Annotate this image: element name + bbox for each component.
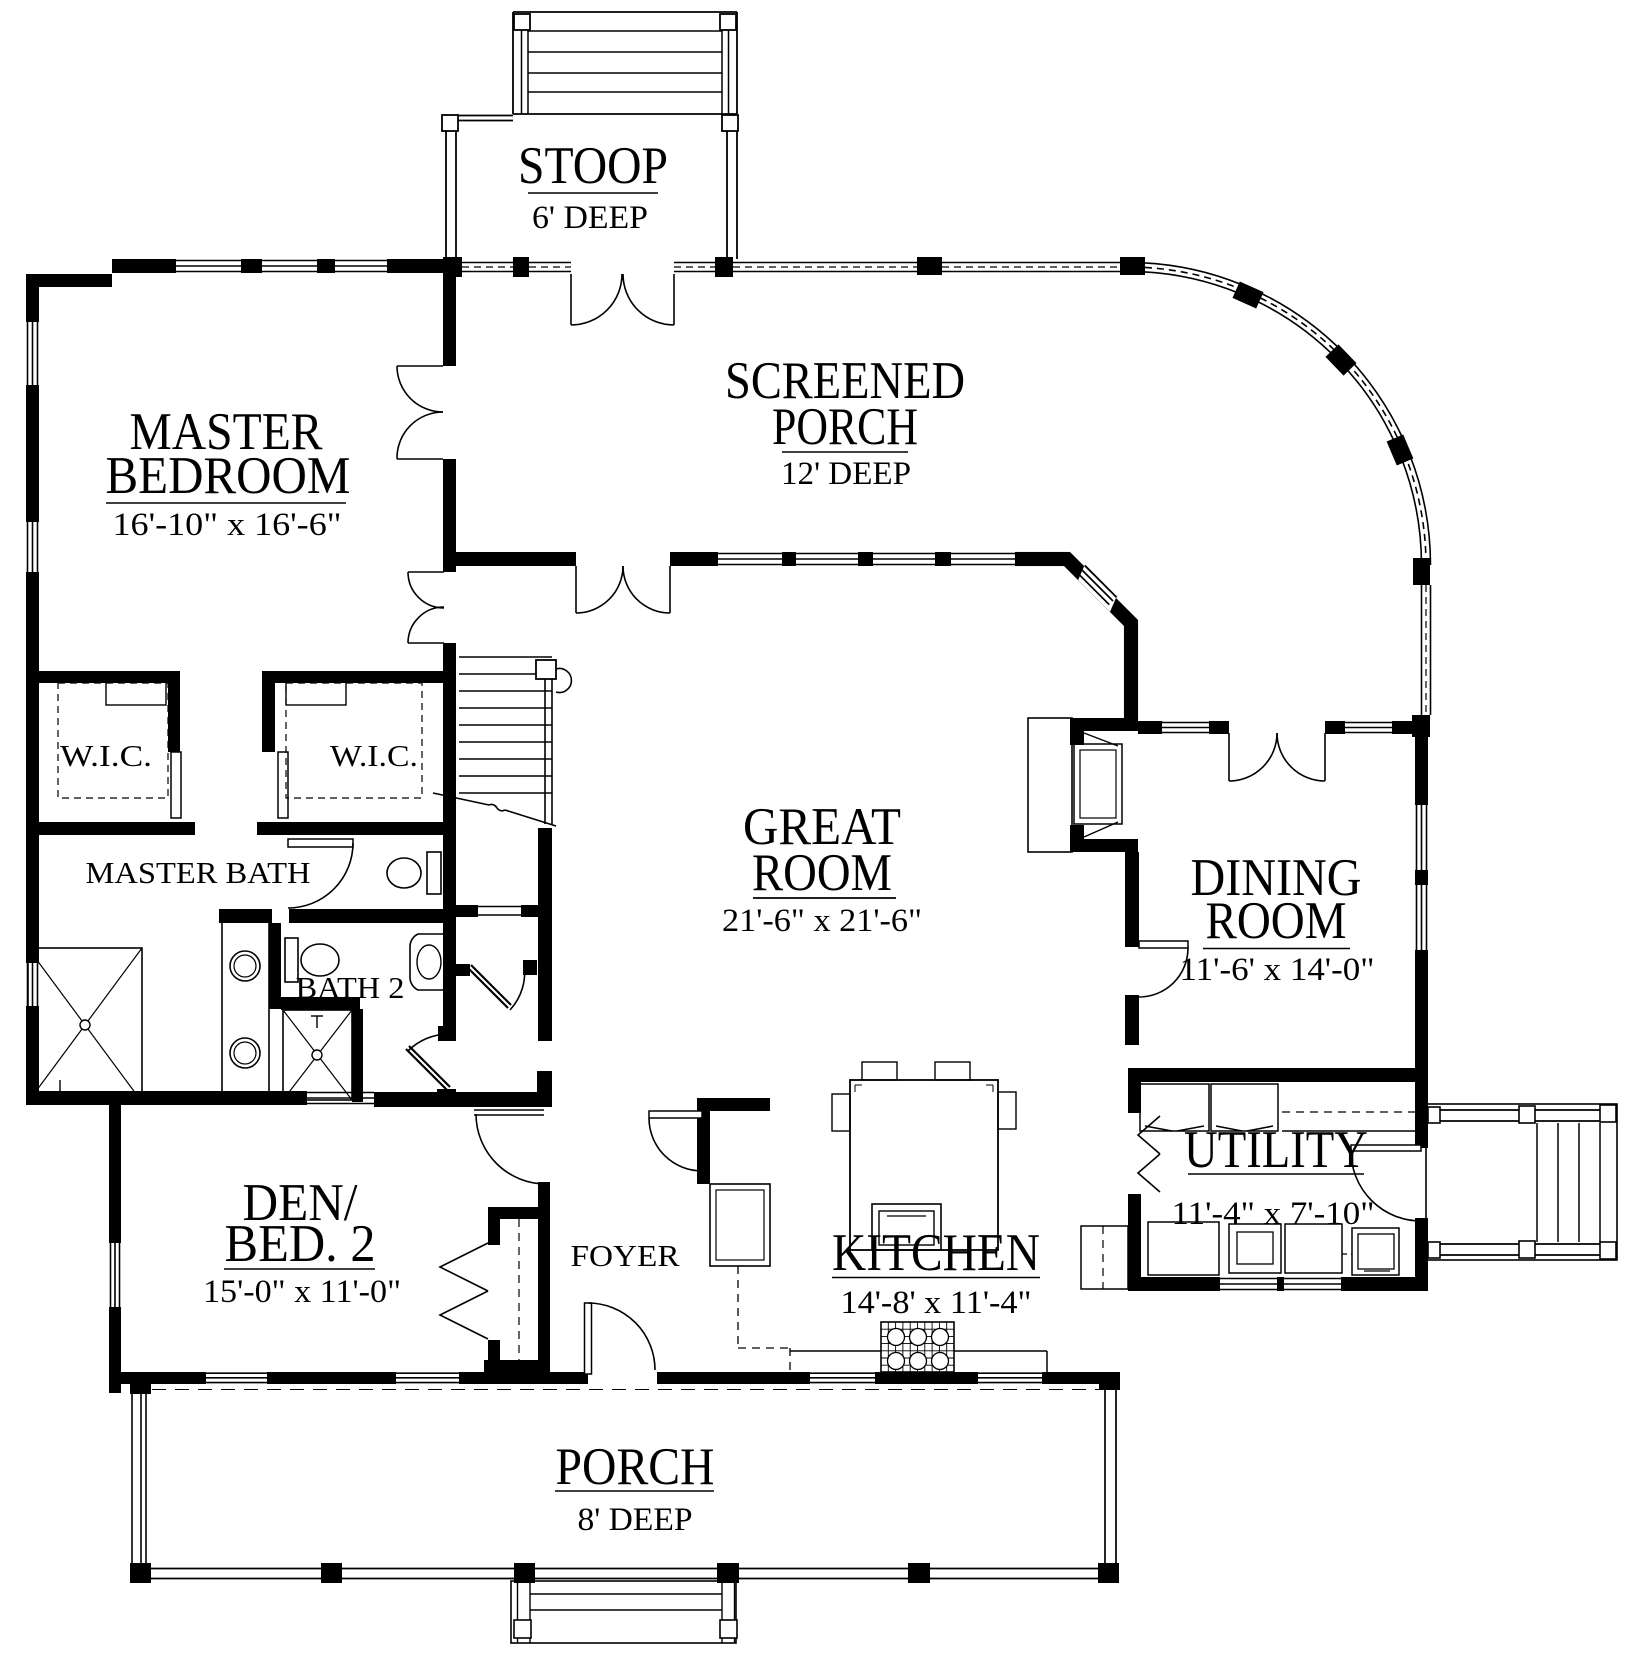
svg-text:STOOP: STOOP bbox=[518, 137, 668, 195]
svg-text:BEDROOM: BEDROOM bbox=[106, 447, 351, 505]
svg-text:15'-0" x 11'-0": 15'-0" x 11'-0" bbox=[203, 1274, 401, 1310]
svg-text:PORCH: PORCH bbox=[556, 1438, 715, 1496]
svg-text:14'-8' x 11'-4": 14'-8' x 11'-4" bbox=[841, 1285, 1032, 1321]
svg-text:21'-6" x 21'-6": 21'-6" x 21'-6" bbox=[722, 903, 922, 939]
svg-text:W.I.C.: W.I.C. bbox=[330, 738, 418, 773]
svg-text:W.I.C.: W.I.C. bbox=[60, 738, 152, 773]
svg-text:MASTER BATH: MASTER BATH bbox=[86, 855, 311, 890]
svg-text:BATH 2: BATH 2 bbox=[296, 970, 405, 1005]
svg-text:11'-6' x 14'-0": 11'-6' x 14'-0" bbox=[1180, 952, 1375, 988]
svg-text:8' DEEP: 8' DEEP bbox=[578, 1502, 693, 1538]
svg-text:6' DEEP: 6' DEEP bbox=[532, 200, 648, 236]
svg-text:KITCHEN: KITCHEN bbox=[832, 1224, 1040, 1282]
svg-text:BED. 2: BED. 2 bbox=[225, 1215, 376, 1273]
svg-text:UTILITY: UTILITY bbox=[1184, 1121, 1368, 1179]
svg-text:FOYER: FOYER bbox=[571, 1238, 680, 1273]
svg-text:16'-10" x 16'-6": 16'-10" x 16'-6" bbox=[113, 507, 342, 543]
svg-text:ROOM: ROOM bbox=[752, 844, 892, 902]
svg-text:ROOM: ROOM bbox=[1206, 892, 1347, 950]
svg-text:12' DEEP: 12' DEEP bbox=[781, 456, 911, 492]
svg-text:PORCH: PORCH bbox=[772, 398, 918, 456]
svg-text:11'-4" x 7'-10": 11'-4" x 7'-10" bbox=[1172, 1196, 1375, 1232]
